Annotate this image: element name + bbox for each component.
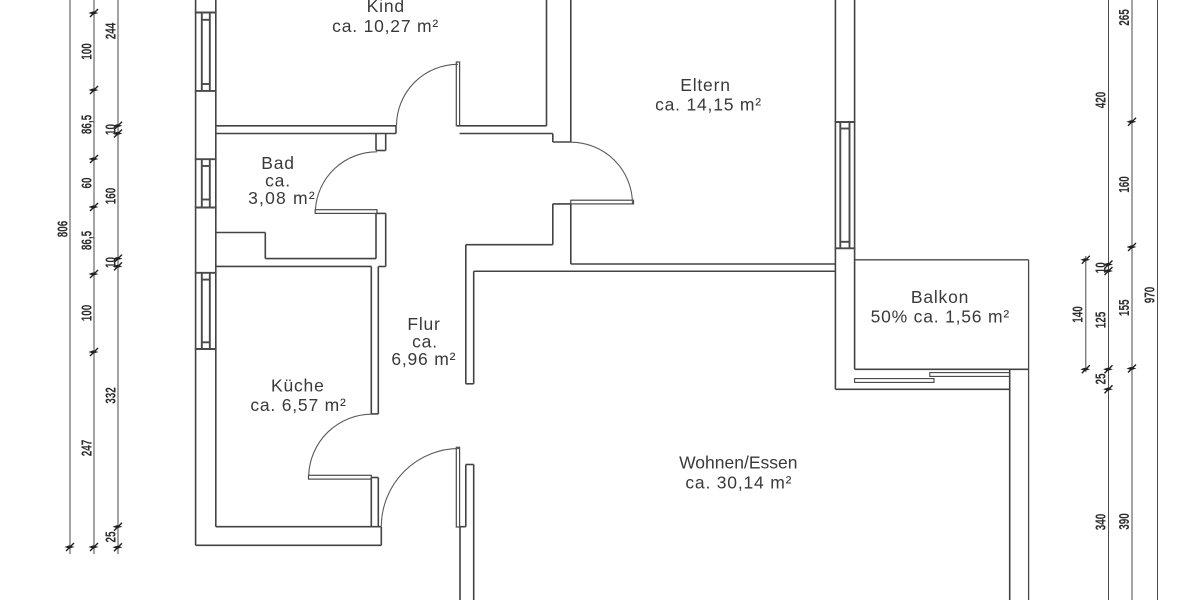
svg-text:10: 10 (103, 257, 119, 268)
svg-text:3,08 m²: 3,08 m² (248, 188, 316, 208)
svg-text:140: 140 (1070, 306, 1086, 323)
svg-text:Eltern: Eltern (680, 75, 731, 95)
svg-text:265: 265 (1116, 9, 1132, 26)
svg-text:86,5: 86,5 (79, 231, 95, 250)
svg-text:Wohnen/Essen: Wohnen/Essen (679, 453, 797, 473)
svg-text:806: 806 (55, 221, 71, 238)
svg-text:390: 390 (1116, 513, 1132, 530)
svg-text:25: 25 (103, 531, 119, 542)
svg-text:125: 125 (1093, 312, 1109, 329)
svg-text:Küche: Küche (271, 376, 325, 396)
svg-text:100: 100 (79, 305, 95, 322)
svg-text:10: 10 (1093, 262, 1109, 273)
svg-text:332: 332 (103, 387, 119, 404)
svg-text:160: 160 (103, 188, 119, 205)
svg-text:155: 155 (1116, 299, 1132, 316)
svg-text:ca. 30,14 m²: ca. 30,14 m² (685, 473, 792, 493)
svg-text:247: 247 (79, 440, 95, 457)
svg-text:100: 100 (79, 43, 95, 60)
svg-text:86,5: 86,5 (79, 115, 95, 134)
svg-text:ca. 6,57 m²: ca. 6,57 m² (250, 395, 346, 415)
svg-text:6,96 m²: 6,96 m² (391, 349, 456, 369)
svg-text:50% ca. 1,56 m²: 50% ca. 1,56 m² (871, 306, 1010, 326)
svg-text:25: 25 (1093, 373, 1109, 384)
svg-text:340: 340 (1093, 514, 1109, 531)
svg-text:420: 420 (1093, 92, 1109, 109)
svg-text:244: 244 (103, 23, 119, 40)
svg-text:970: 970 (1142, 287, 1158, 304)
svg-text:ca. 10,27 m²: ca. 10,27 m² (332, 16, 439, 36)
svg-text:Balkon: Balkon (911, 287, 969, 307)
svg-text:10: 10 (103, 124, 119, 135)
svg-text:60: 60 (79, 177, 95, 188)
svg-text:Kind: Kind (367, 0, 405, 16)
svg-text:ca. 14,15 m²: ca. 14,15 m² (655, 95, 762, 115)
svg-text:160: 160 (1116, 176, 1132, 193)
